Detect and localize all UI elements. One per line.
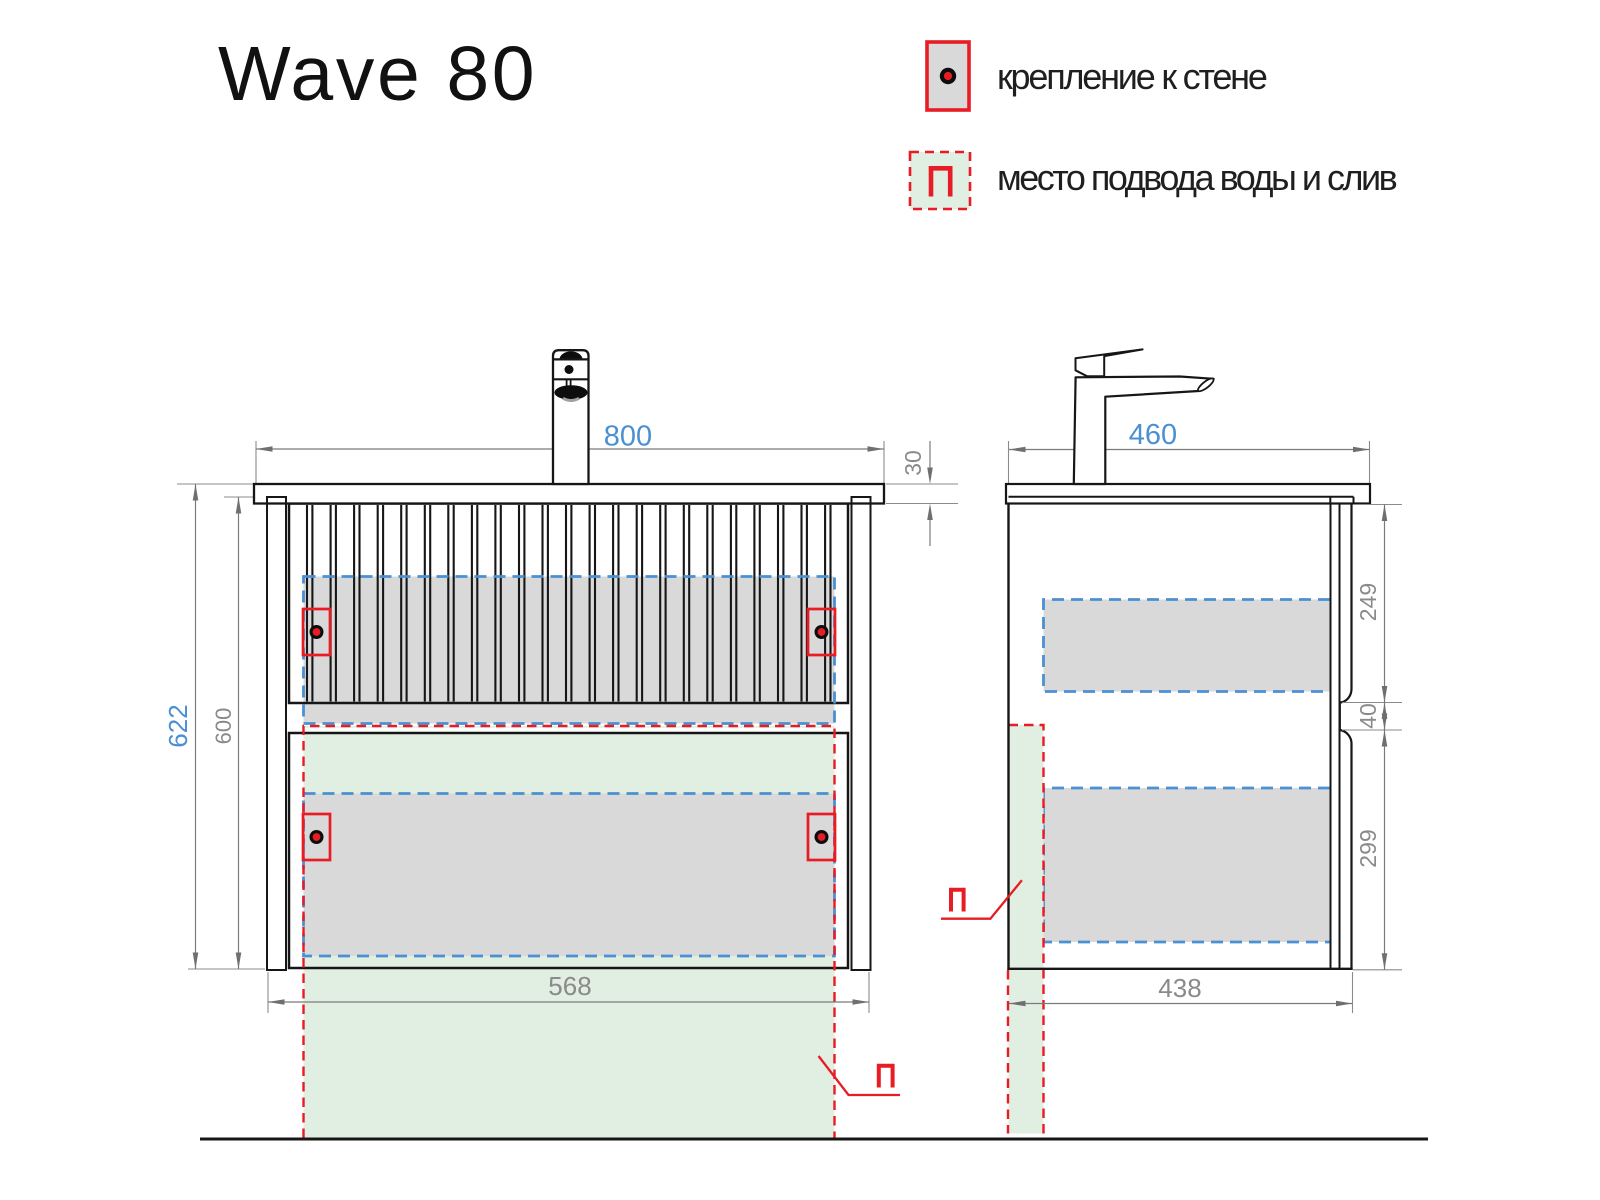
svg-text:600: 600	[211, 708, 236, 745]
svg-text:622: 622	[163, 704, 193, 747]
svg-text:Wave 80: Wave 80	[218, 31, 537, 117]
svg-text:место подвода воды и слив: место подвода воды и слив	[997, 157, 1397, 198]
svg-text:крепление к стене: крепление к стене	[997, 56, 1267, 97]
svg-text:460: 460	[1129, 419, 1177, 451]
svg-text:299: 299	[1355, 829, 1381, 867]
svg-text:438: 438	[1158, 973, 1201, 1003]
svg-text:30: 30	[900, 450, 926, 476]
svg-text:40: 40	[1355, 703, 1381, 729]
svg-text:568: 568	[548, 971, 591, 1001]
svg-text:249: 249	[1355, 583, 1381, 621]
svg-text:800: 800	[604, 421, 652, 453]
